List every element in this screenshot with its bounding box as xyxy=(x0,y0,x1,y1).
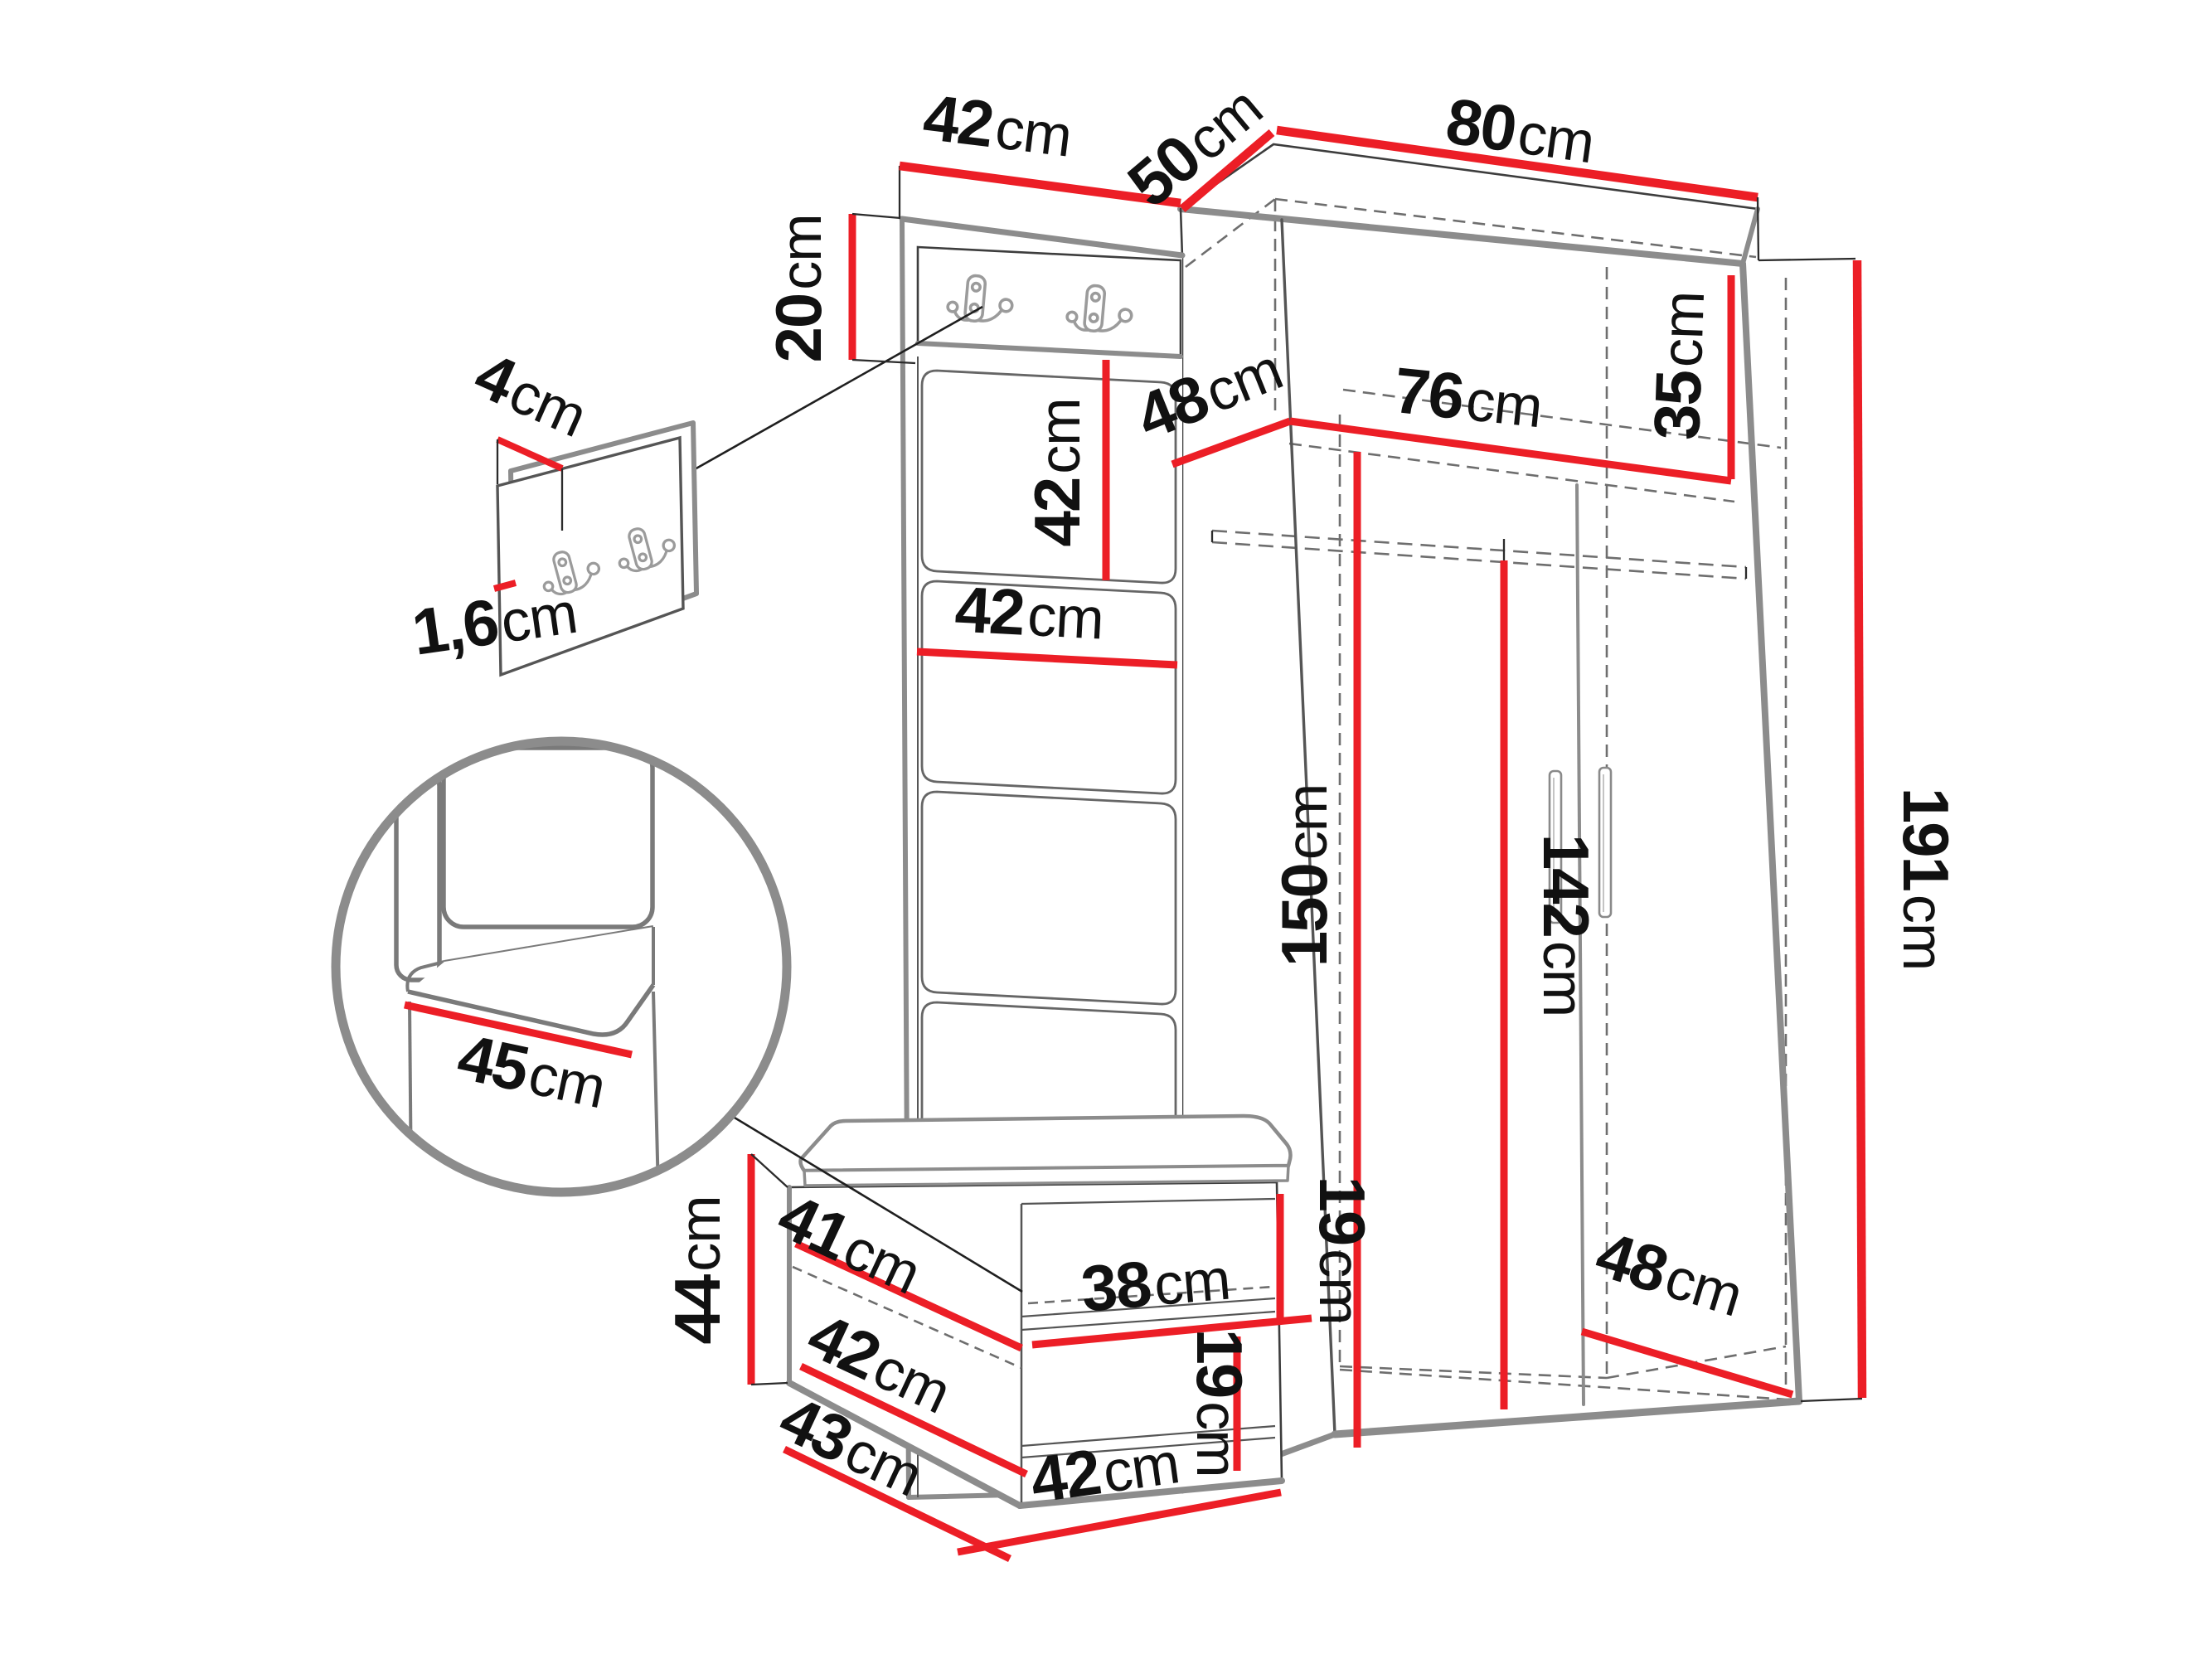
back-cushion-panel xyxy=(444,748,652,927)
dim-label-4: 4cm xyxy=(464,337,599,450)
dim-label-80: 80cm xyxy=(1442,84,1599,177)
upholstered-panel xyxy=(922,792,1176,1004)
dim-label-19-upper: 19cm xyxy=(1306,1176,1379,1324)
dim-label-150: 150cm xyxy=(1268,784,1341,967)
dim-label-35: 35cm xyxy=(1640,290,1718,441)
furniture-dimension-diagram: 42cm 50cm 80cm 20cm 4cm 1,6cm 48cm 76cm … xyxy=(0,0,2212,1659)
hook-board xyxy=(918,247,1181,357)
dim-label-19-lower: 19cm xyxy=(1183,1328,1256,1477)
dim-label-42-vertical: 42cm xyxy=(1021,398,1094,546)
dim-label-44: 44cm xyxy=(661,1196,734,1344)
bench-seat-cushion xyxy=(801,1116,1291,1186)
dim-label-142: 142cm xyxy=(1530,834,1603,1016)
dim-label-42-top: 42cm xyxy=(919,80,1075,171)
dim-label-20: 20cm xyxy=(762,214,835,362)
diagram-stage: 42cm 50cm 80cm 20cm 4cm 1,6cm 48cm 76cm … xyxy=(0,0,2212,1659)
dim-label-191: 191cm xyxy=(1889,788,1962,970)
seat-detail-circle-inset xyxy=(336,741,787,1192)
dim-line-191 xyxy=(1857,260,1862,1398)
